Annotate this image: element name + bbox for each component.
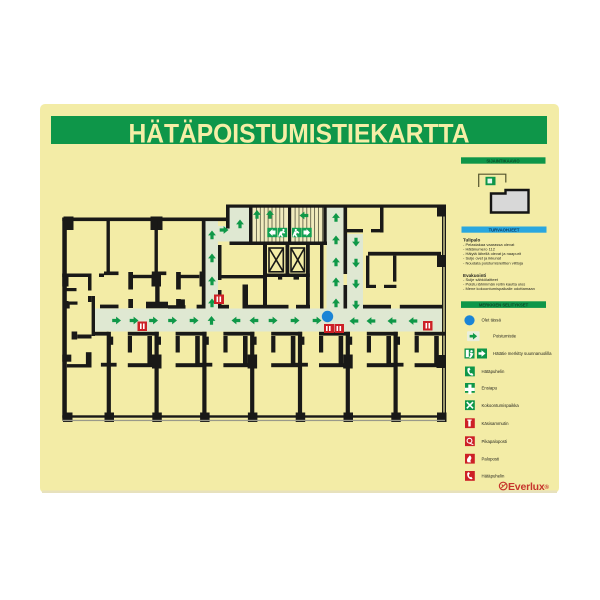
svg-text:Olet tässä: Olet tässä: [482, 318, 502, 323]
svg-text:Ensiapu: Ensiapu: [482, 386, 498, 391]
svg-text:HÄTÄPOISTUMISTIEKARTTA: HÄTÄPOISTUMISTIEKARTTA: [129, 119, 470, 149]
svg-text:Poistumistie: Poistumistie: [493, 334, 517, 339]
svg-text:MERKKIEN SELITYKSET: MERKKIEN SELITYKSET: [479, 303, 529, 308]
svg-text:TURVAOHJEET: TURVAOHJEET: [489, 228, 520, 233]
svg-text:Pikapaloposti: Pikapaloposti: [482, 439, 508, 444]
svg-text:- Noudata poistumisreittien vi: - Noudata poistumisreittien viittoja: [463, 260, 524, 265]
svg-text:Kokoontumispaikka: Kokoontumispaikka: [482, 403, 520, 408]
svg-text:Paloposti: Paloposti: [482, 456, 500, 461]
svg-text:Hätätie merkitty suunnanuolill: Hätätie merkitty suunnanuolilla: [493, 351, 552, 356]
svg-text:Everlux®: Everlux®: [508, 481, 550, 493]
svg-text:- Mene kokoontumispaikalle odo: - Mene kokoontumispaikalle odottamaan: [463, 286, 535, 291]
svg-text:Käsisammutin: Käsisammutin: [482, 421, 510, 426]
svg-text:Hätäpuhelin: Hätäpuhelin: [482, 369, 506, 374]
svg-text:SIJAINTIKAAVIO: SIJAINTIKAAVIO: [486, 158, 520, 163]
svg-text:Hätäpuhelin: Hätäpuhelin: [482, 474, 506, 479]
